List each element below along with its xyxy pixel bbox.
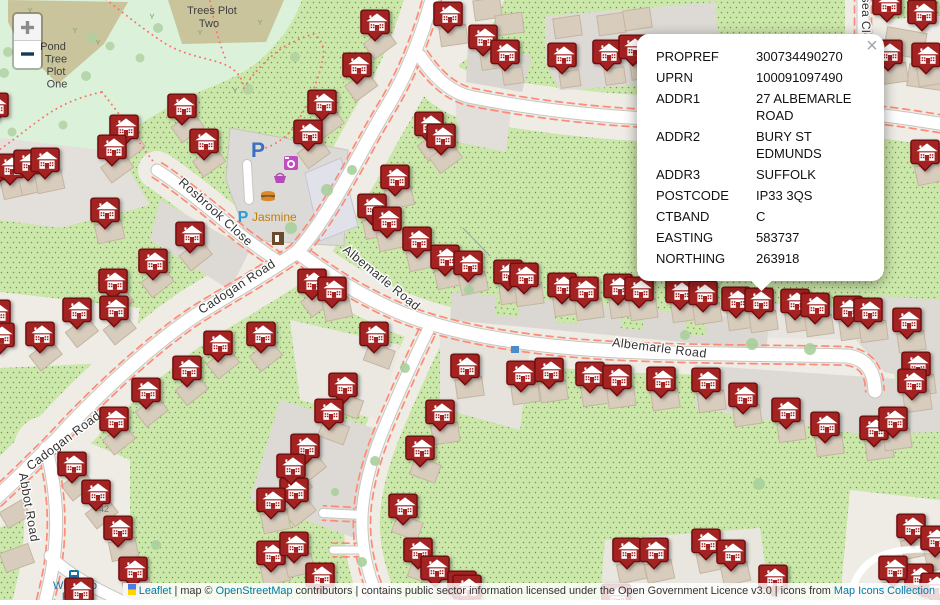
svg-text:P: P bbox=[238, 209, 249, 226]
svg-text:Pond: Pond bbox=[40, 41, 66, 53]
svg-text:Plot: Plot bbox=[47, 66, 66, 78]
svg-text:Two: Two bbox=[199, 18, 219, 30]
svg-text:Trees Plot: Trees Plot bbox=[187, 5, 237, 17]
svg-text:Jasmine: Jasmine bbox=[252, 210, 297, 224]
svg-text:P: P bbox=[251, 139, 265, 162]
svg-text:Tree: Tree bbox=[45, 54, 67, 66]
svg-text:One: One bbox=[47, 79, 68, 91]
